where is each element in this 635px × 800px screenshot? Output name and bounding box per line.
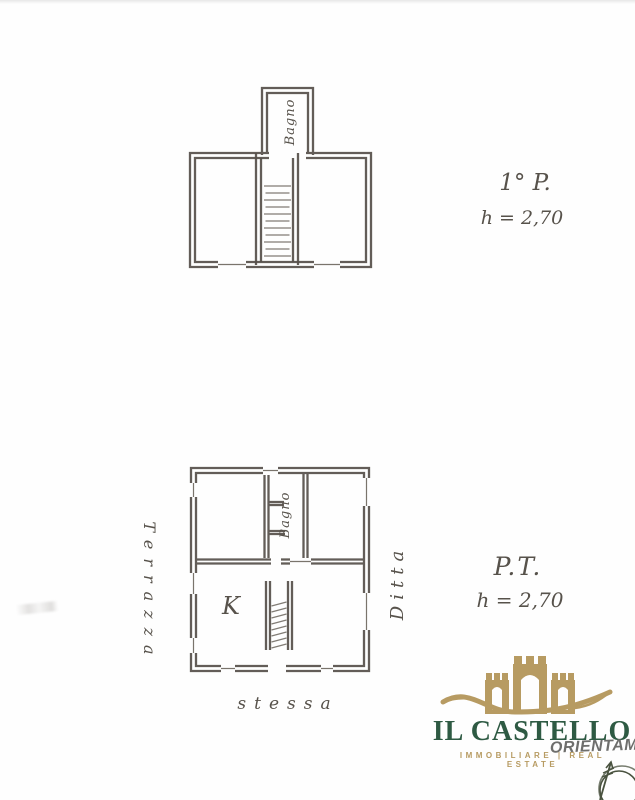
kitchen-label: K: [222, 592, 240, 620]
company-annotation: Ditta: [387, 525, 408, 640]
bathroom-opening: [269, 151, 306, 161]
ground-floor-bath-label-box: Bagno: [256, 486, 314, 544]
first-floor-label: 1° P.: [470, 170, 580, 196]
scanned-floorplan-page: Bagno 1° P. h = 2,70: [0, 0, 635, 800]
middle-dividing-wall: [196, 560, 364, 564]
ground-floor-top-window: [263, 466, 278, 475]
scan-smudge: [16, 601, 59, 615]
first-floor-height-label: h = 2,70: [462, 207, 582, 229]
first-floor-bath-label-box: Bagno: [262, 94, 318, 150]
staircase-treads: [264, 186, 291, 256]
ground-staircase-treads: [272, 602, 287, 648]
same-company-annotation: stessa: [233, 694, 343, 714]
terrace-annotation: Terrazza: [140, 505, 159, 680]
ground-floor-bath-label: Bagno: [278, 492, 293, 539]
staircase-shaft-walls: [256, 153, 298, 265]
ground-floor-label: P.T.: [468, 552, 568, 581]
scanner-edge-shadow: [0, 0, 635, 4]
first-floor-outer-walls: [190, 153, 371, 267]
orientation-watermark: ORIENTAME: [550, 736, 635, 757]
ground-floor-height-label: h = 2,70: [460, 588, 580, 612]
castle-icon: [425, 650, 635, 722]
first-floor-bath-label: Bagno: [283, 99, 298, 146]
